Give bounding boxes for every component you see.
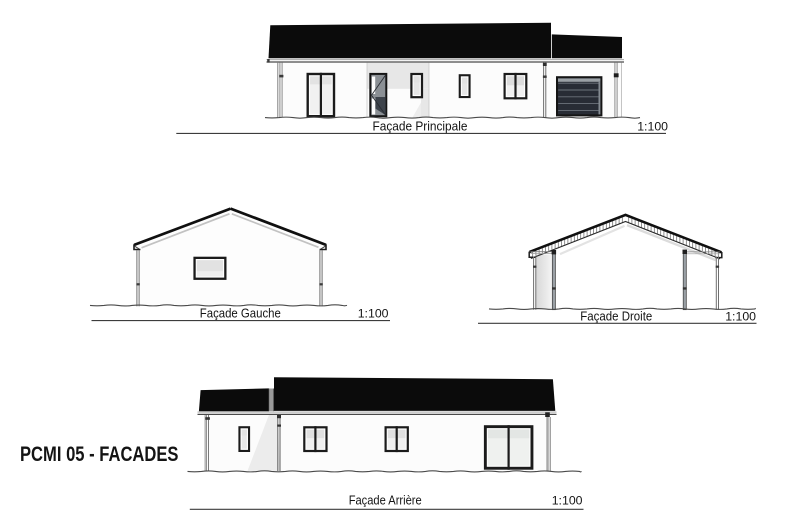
svg-text:1:100: 1:100 (552, 494, 583, 508)
svg-text:1:100: 1:100 (637, 120, 668, 134)
svg-text:Façade Principale: Façade Principale (373, 120, 468, 134)
svg-text:Façade Arrière: Façade Arrière (349, 494, 422, 508)
svg-text:1:100: 1:100 (725, 309, 756, 323)
svg-text:PCMI 05 - FACADES: PCMI 05 - FACADES (20, 443, 179, 466)
svg-text:Façade Droite: Façade Droite (580, 309, 652, 323)
svg-text:Façade Gauche: Façade Gauche (200, 307, 281, 321)
svg-text:1:100: 1:100 (358, 307, 389, 321)
